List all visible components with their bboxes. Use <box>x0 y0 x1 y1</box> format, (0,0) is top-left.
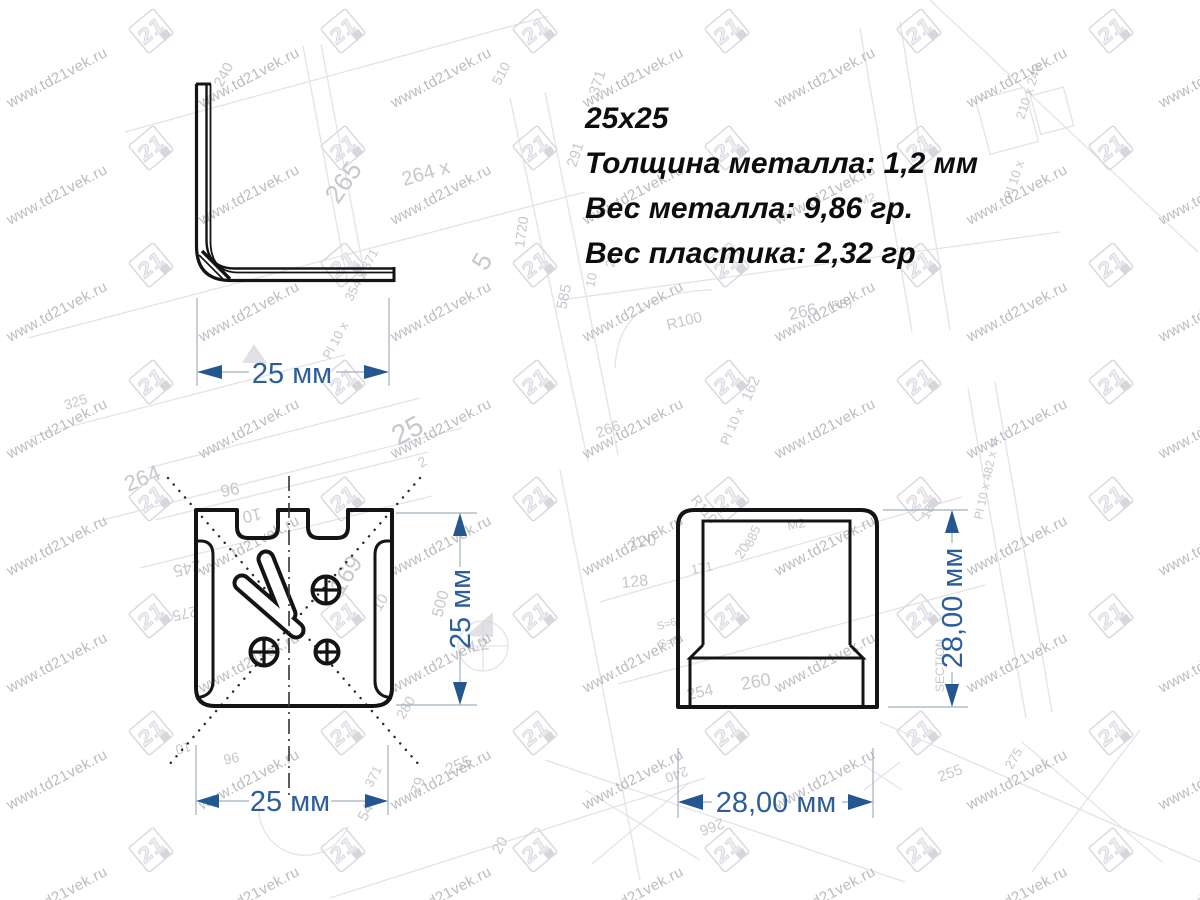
cap-view-drawing: 28,00 мм 28,00 мм <box>678 510 969 819</box>
cap-width-dimension: 28,00 мм <box>678 748 873 819</box>
dim-arrow-down <box>945 684 959 707</box>
side-view-inner-contour-2 <box>211 84 395 273</box>
cap-width-dimension-label: 28,00 мм <box>716 787 837 819</box>
front-width-dimension: 25 мм <box>196 745 388 818</box>
cap-skirt <box>690 645 863 707</box>
cap-inner-plate <box>703 521 850 645</box>
front-view-right-flange <box>375 541 392 698</box>
cap-height-dimension-label: 28,00 мм <box>937 548 969 669</box>
dim-arrow-down <box>453 682 467 705</box>
dim-arrow-left <box>196 794 219 808</box>
side-width-dimension: 25 мм <box>197 298 389 390</box>
dim-arrow-right <box>848 794 873 810</box>
dim-arrow-left <box>678 794 703 810</box>
front-view-drawing: 25 мм 25 мм <box>168 476 477 818</box>
spec-plastic-weight: Вес пластика: 2,32 гр <box>585 231 978 276</box>
bracket-drawing-page: 240510371291265264 x210 x 240Pl 10 x354 … <box>0 0 1200 900</box>
side-view-inner-contour <box>207 84 395 269</box>
dim-arrow-up <box>945 510 959 533</box>
side-view-outer-contour <box>197 84 395 281</box>
dim-arrow-right <box>365 794 388 808</box>
side-width-dimension-label: 25 мм <box>252 358 332 390</box>
cap-height-dimension: 28,00 мм <box>883 510 969 707</box>
dim-arrow-up <box>453 513 467 536</box>
cap-outline <box>678 510 877 707</box>
front-height-dimension: 25 мм <box>396 513 477 705</box>
spec-metal-thickness: Толщина металла: 1,2 мм <box>585 141 978 186</box>
dim-arrow-left <box>197 365 222 379</box>
side-view-drawing: 25 мм <box>196 84 394 390</box>
front-view-left-flange <box>196 541 213 698</box>
mounting-slots <box>242 559 296 630</box>
front-height-dimension-label: 25 мм <box>445 569 477 649</box>
spec-size: 25x25 <box>585 96 978 141</box>
dim-arrow-right <box>364 365 389 379</box>
front-width-dimension-label: 25 мм <box>250 786 330 818</box>
product-specs: 25x25 Толщина металла: 1,2 мм Вес металл… <box>585 96 978 276</box>
side-view-end-caps <box>196 84 394 282</box>
spec-metal-weight: Вес металла: 9,86 гр. <box>585 186 978 231</box>
